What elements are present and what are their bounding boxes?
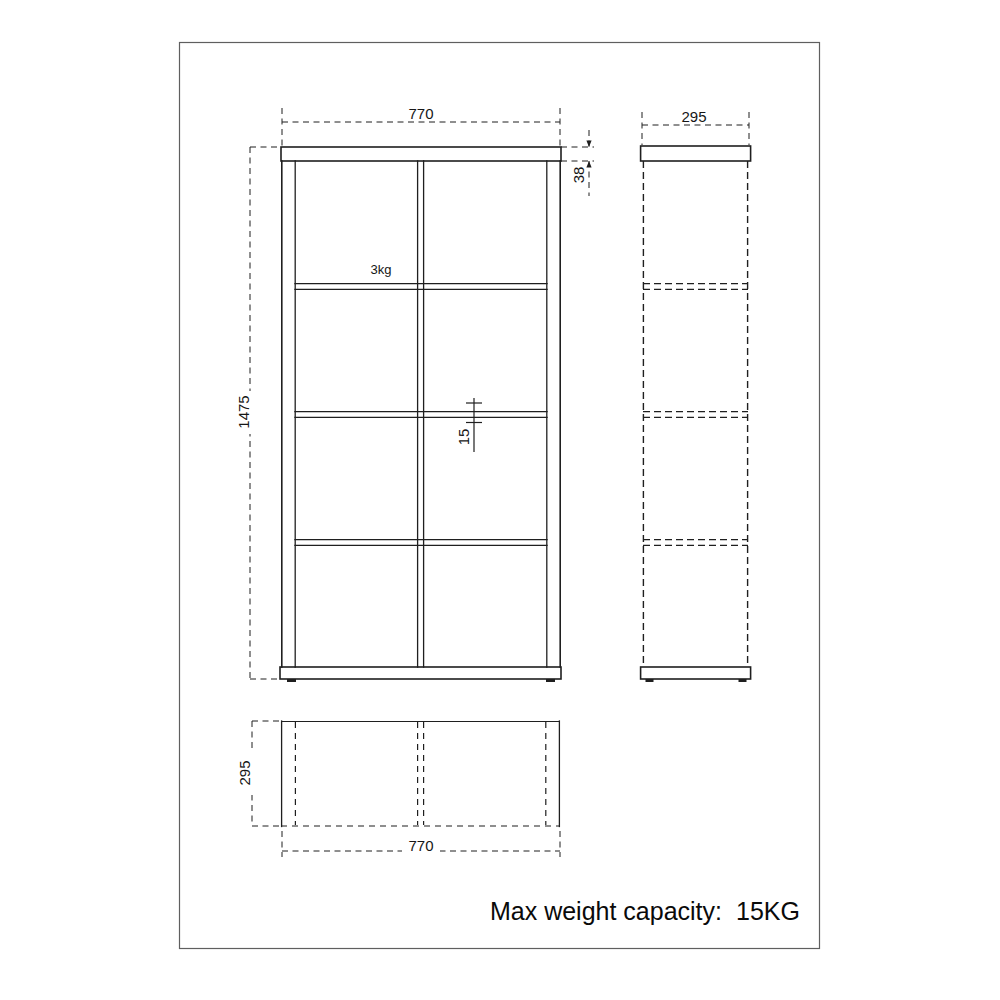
front-view — [280, 147, 561, 682]
shelf-load-label: 3kg — [371, 262, 392, 277]
max-weight-note-value: 15KG — [736, 897, 800, 925]
side-view — [641, 146, 751, 682]
topview-width-label: 770 — [408, 837, 433, 854]
front-height-label: 1475 — [235, 395, 252, 428]
front-bottom-panel — [280, 667, 561, 679]
dim-arrow — [586, 141, 591, 148]
drawing-border — [180, 43, 820, 949]
side-depth-label: 295 — [681, 108, 706, 125]
dim-arrow — [586, 161, 591, 168]
front-width-label: 770 — [408, 105, 433, 122]
front-right-foot — [546, 679, 555, 682]
max-weight-note: Max weight capacity: 15KG — [490, 897, 800, 925]
topview-depth-label: 295 — [236, 760, 253, 785]
top-view — [281, 721, 560, 827]
top-view-dimensions — [252, 721, 560, 857]
dimension-labels: 770 1475 38 3kg 15 295 295 770 — [235, 105, 707, 854]
side-back-foot — [739, 679, 747, 682]
side-front-foot — [646, 679, 654, 682]
top-thickness-label: 38 — [570, 167, 587, 184]
side-top-panel — [641, 146, 751, 161]
label-masks — [236, 105, 713, 854]
max-weight-note-label: Max weight capacity: — [490, 897, 722, 925]
furniture-dimension-drawing: 770 1475 38 3kg 15 295 295 770 Max weigh… — [0, 0, 1000, 1000]
side-bottom-panel — [641, 667, 751, 679]
front-top-panel — [281, 147, 561, 161]
shelf-thickness-label: 15 — [455, 429, 472, 446]
front-left-foot — [287, 679, 296, 682]
front-view-dimensions — [250, 108, 594, 679]
